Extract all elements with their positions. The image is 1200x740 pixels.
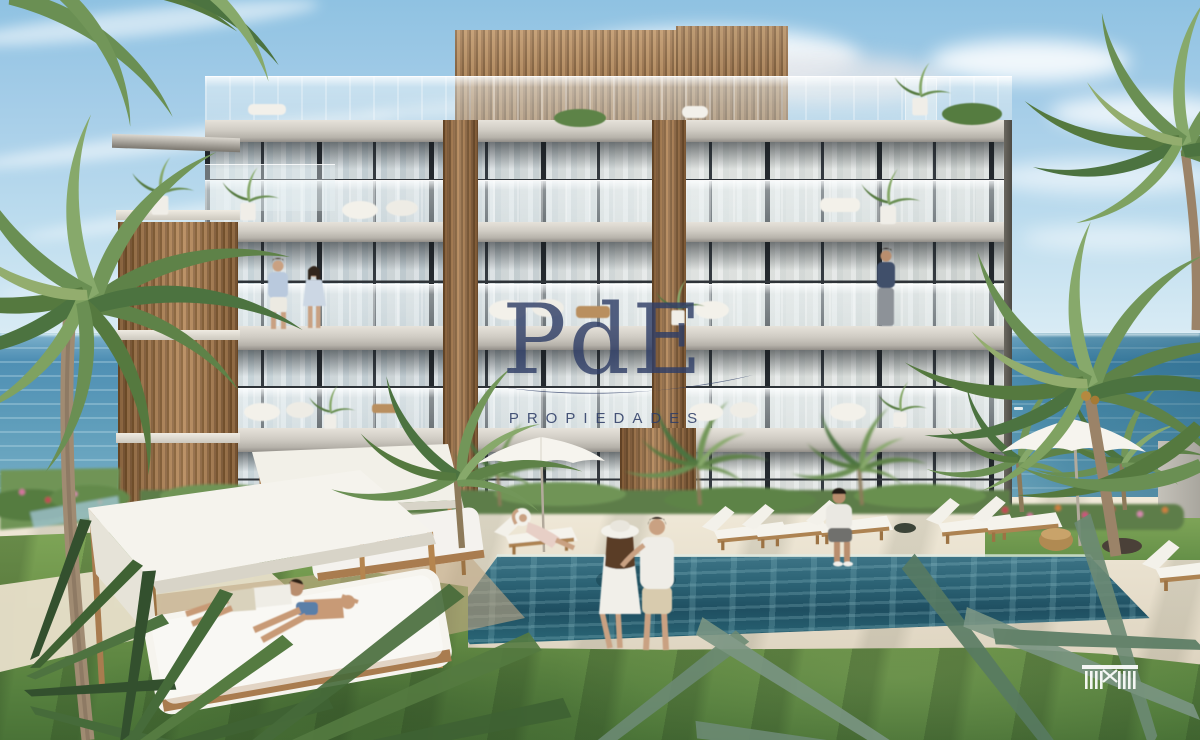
rooftop-decor <box>248 61 1002 127</box>
balcony-man-right <box>877 248 895 326</box>
watermark-swoosh-icon <box>445 373 761 397</box>
balcony-woman <box>303 266 326 328</box>
watermark-subtitle: PROPIEDADES <box>442 410 764 427</box>
watermark: PdE PROPIEDADES <box>442 296 764 427</box>
watermark-title: PdE <box>442 296 764 384</box>
pool-couple <box>599 517 674 650</box>
render-canvas: PdE PROPIEDADES <box>0 0 1200 740</box>
palm-top-right <box>1004 0 1200 330</box>
palm-top-left <box>2 0 288 136</box>
lounger-woman <box>494 508 578 555</box>
pergola-logo-icon <box>1080 658 1142 698</box>
